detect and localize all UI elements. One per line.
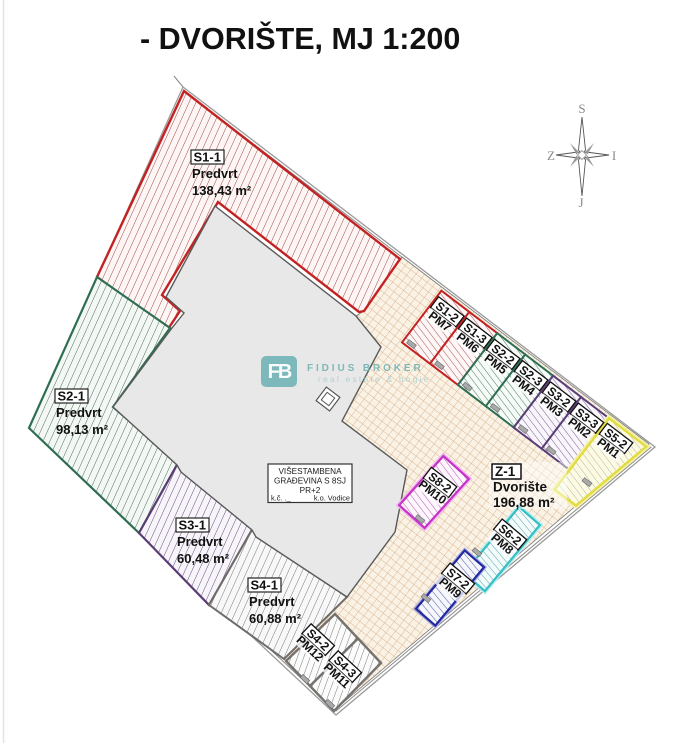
svg-text:Predvrt: Predvrt	[56, 405, 102, 420]
svg-text:FIDIUS BROKER: FIDIUS BROKER	[307, 363, 424, 374]
svg-text:Predvrt: Predvrt	[192, 166, 238, 181]
svg-text:GRAĐEVINA S 8SJ: GRAĐEVINA S 8SJ	[274, 477, 346, 486]
svg-text:Z-1: Z-1	[495, 464, 516, 479]
svg-text:- DVORIŠTE, MJ 1:200: - DVORIŠTE, MJ 1:200	[140, 20, 460, 56]
svg-text:98,13 m²: 98,13 m²	[56, 422, 109, 437]
svg-text:VIŠESTAMBENA: VIŠESTAMBENA	[278, 466, 342, 476]
svg-text:138,43 m²: 138,43 m²	[192, 183, 252, 198]
svg-text:J: J	[578, 195, 583, 210]
svg-text:real estate & bogie: real estate & bogie	[318, 374, 431, 384]
svg-text:S: S	[578, 101, 585, 116]
svg-text:I: I	[612, 148, 616, 163]
svg-text:S1-1: S1-1	[194, 150, 221, 165]
svg-text:S2-1: S2-1	[58, 389, 85, 404]
svg-text:Predvrt: Predvrt	[177, 534, 223, 549]
svg-text:S3-1: S3-1	[179, 518, 206, 533]
svg-text:Z: Z	[547, 148, 555, 163]
svg-text:196,88 m²: 196,88 m²	[493, 495, 555, 510]
svg-text:Predvrt: Predvrt	[249, 594, 295, 609]
svg-text:k.o. Vodice: k.o. Vodice	[314, 494, 350, 503]
svg-text:k.č. ._: k.č. ._	[271, 494, 292, 503]
svg-text:60,88 m²: 60,88 m²	[249, 611, 302, 626]
svg-text:Dvorište: Dvorište	[493, 480, 548, 495]
svg-text:S4-1: S4-1	[251, 578, 278, 593]
svg-text:FB: FB	[268, 361, 292, 383]
svg-text:60,48 m²: 60,48 m²	[177, 551, 230, 566]
